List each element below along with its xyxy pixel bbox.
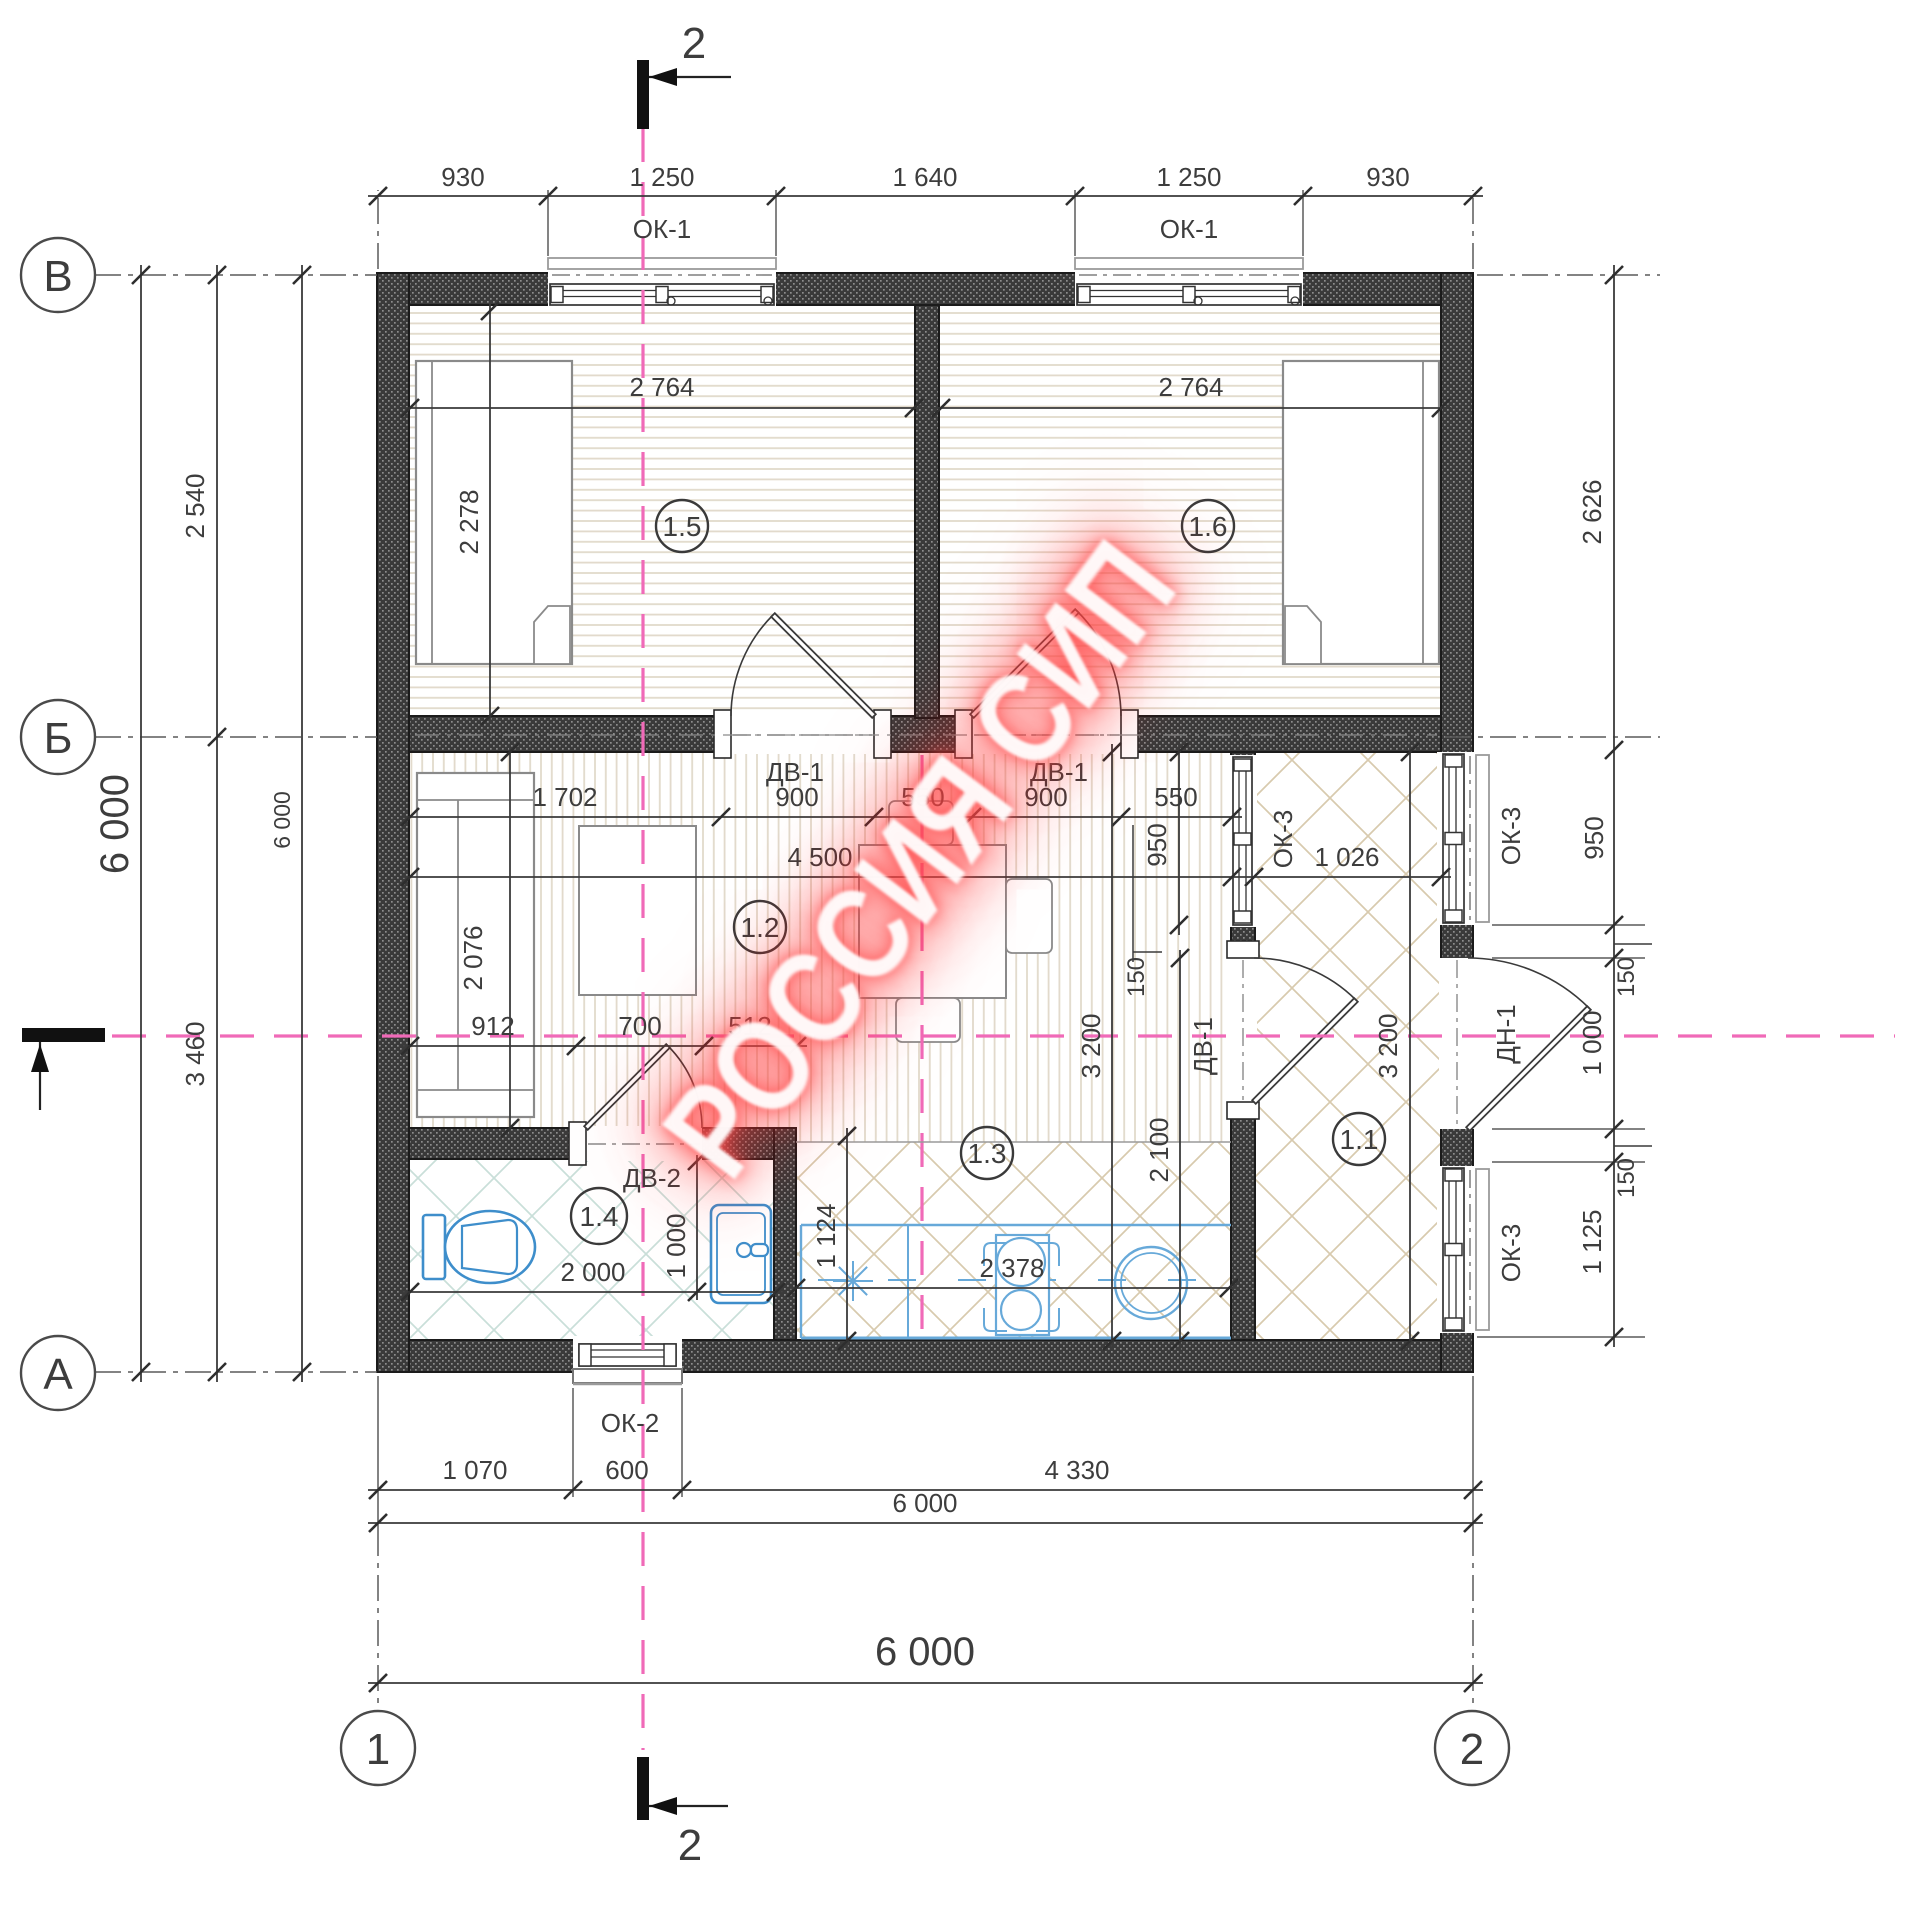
svg-text:1 250: 1 250 (1156, 162, 1221, 192)
svg-text:2 764: 2 764 (629, 372, 694, 402)
svg-text:3 200: 3 200 (1076, 1013, 1106, 1078)
svg-text:900: 900 (1024, 782, 1067, 812)
svg-text:2 540: 2 540 (180, 473, 210, 538)
svg-text:1 640: 1 640 (892, 162, 957, 192)
svg-text:2 000: 2 000 (560, 1257, 625, 1287)
svg-text:550: 550 (901, 782, 944, 812)
svg-text:600: 600 (605, 1455, 648, 1485)
svg-text:150: 150 (1613, 957, 1640, 997)
svg-text:2: 2 (1460, 1725, 1484, 1774)
svg-text:6 000: 6 000 (875, 1630, 975, 1674)
svg-text:ОК-3: ОК-3 (1268, 810, 1298, 869)
svg-text:150: 150 (1613, 1158, 1640, 1198)
svg-text:3 460: 3 460 (180, 1021, 210, 1086)
svg-text:1.2: 1.2 (741, 912, 780, 943)
svg-text:930: 930 (441, 162, 484, 192)
svg-text:550: 550 (1154, 782, 1197, 812)
svg-text:1 124: 1 124 (811, 1203, 841, 1268)
svg-text:2 076: 2 076 (458, 925, 488, 990)
svg-text:ДВ-2: ДВ-2 (623, 1163, 681, 1193)
svg-text:2 764: 2 764 (1158, 372, 1223, 402)
svg-text:6 000: 6 000 (93, 774, 137, 874)
svg-text:1: 1 (366, 1725, 390, 1774)
svg-text:4 330: 4 330 (1044, 1455, 1109, 1485)
svg-text:3 200: 3 200 (1373, 1013, 1403, 1078)
svg-text:1.6: 1.6 (1189, 511, 1228, 542)
svg-text:ДВ-1: ДВ-1 (1188, 1017, 1218, 1075)
svg-text:900: 900 (775, 782, 818, 812)
svg-text:ОК-3: ОК-3 (1496, 1224, 1526, 1283)
svg-text:1.4: 1.4 (580, 1201, 619, 1232)
svg-text:1 250: 1 250 (629, 162, 694, 192)
svg-text:ОК-1: ОК-1 (633, 214, 692, 244)
svg-text:950: 950 (1579, 816, 1609, 859)
svg-text:1 125: 1 125 (1577, 1209, 1607, 1274)
svg-text:1 070: 1 070 (442, 1455, 507, 1485)
svg-text:1 702: 1 702 (532, 782, 597, 812)
svg-text:700: 700 (618, 1011, 661, 1041)
svg-text:6 000: 6 000 (892, 1488, 957, 1518)
svg-text:4 500: 4 500 (787, 842, 852, 872)
svg-text:1.3: 1.3 (968, 1138, 1007, 1169)
svg-text:950: 950 (1142, 823, 1172, 866)
svg-text:ОК-1: ОК-1 (1160, 214, 1219, 244)
svg-text:А: А (43, 1350, 73, 1399)
svg-text:2 100: 2 100 (1144, 1117, 1174, 1182)
svg-text:ОК-2: ОК-2 (601, 1408, 660, 1438)
svg-text:2 378: 2 378 (979, 1253, 1044, 1283)
svg-text:1 000: 1 000 (661, 1213, 691, 1278)
svg-text:6 000: 6 000 (269, 791, 295, 849)
svg-text:2: 2 (678, 1821, 702, 1870)
svg-text:1 026: 1 026 (1314, 842, 1379, 872)
svg-text:912: 912 (471, 1011, 514, 1041)
svg-text:512: 512 (728, 1011, 771, 1041)
svg-text:1.5: 1.5 (663, 511, 702, 542)
svg-text:930: 930 (1366, 162, 1409, 192)
svg-text:150: 150 (1123, 957, 1150, 997)
svg-text:1 000: 1 000 (1577, 1010, 1607, 1075)
svg-text:1.1: 1.1 (1340, 1124, 1379, 1155)
svg-text:Б: Б (44, 714, 73, 763)
svg-text:ДН-1: ДН-1 (1491, 1004, 1521, 1064)
svg-text:2 626: 2 626 (1577, 479, 1607, 544)
svg-text:ОК-3: ОК-3 (1496, 807, 1526, 866)
svg-text:В: В (43, 252, 72, 301)
svg-text:2: 2 (682, 19, 706, 68)
svg-text:2 278: 2 278 (454, 489, 484, 554)
